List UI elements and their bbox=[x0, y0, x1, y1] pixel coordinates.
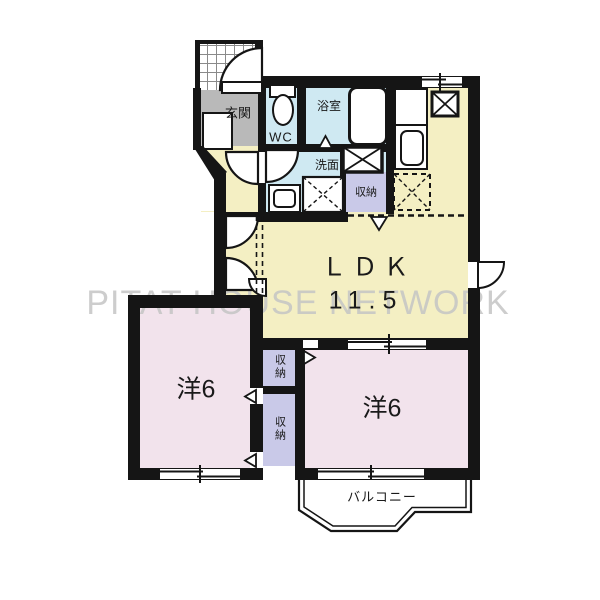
balcony-outline bbox=[299, 480, 471, 531]
sliding-door-ldk-right-room bbox=[348, 334, 426, 354]
entry-door-leaf bbox=[222, 82, 262, 93]
plan-symbols-layer bbox=[0, 0, 600, 600]
ps-shaft-box bbox=[432, 92, 458, 116]
bath-label: 浴室 bbox=[317, 100, 341, 112]
window-top bbox=[422, 73, 462, 91]
ldk-exterior-door-arc bbox=[478, 262, 504, 288]
genkan-label: 玄関 bbox=[225, 107, 251, 120]
kitchen-opening-mark bbox=[371, 217, 387, 230]
washroom-door-arc bbox=[266, 150, 298, 182]
storage-wash-label: 収納 bbox=[355, 188, 377, 199]
west-room-right-label: 洋6 bbox=[363, 397, 402, 422]
storage-mid-top-label: 収納 bbox=[274, 354, 285, 380]
hall-door-arc bbox=[226, 152, 258, 184]
wc-label: WC bbox=[269, 131, 293, 144]
ldk-size-label: 11.5 bbox=[329, 289, 404, 314]
washer-pan bbox=[303, 177, 343, 212]
hanging-cupboard-box bbox=[343, 147, 382, 172]
bath-door-mark bbox=[319, 136, 332, 148]
right-room-door-mark bbox=[304, 351, 315, 364]
corridor-door-arc-upper bbox=[226, 216, 258, 248]
ldk-label: ＬＤＫ bbox=[321, 256, 414, 281]
washroom-door-gap bbox=[258, 152, 266, 183]
storage-mid-bottom-label: 収納 bbox=[274, 416, 285, 442]
floorplan-canvas: PITAT HOUSE NETWORK bbox=[0, 0, 600, 600]
west-room-left-door-arc bbox=[249, 279, 266, 296]
right-room-opening-gap bbox=[303, 340, 318, 348]
window-left-room-south bbox=[160, 465, 240, 483]
washroom-label: 洗面 bbox=[315, 159, 339, 171]
balcony-label: バルコニー bbox=[347, 491, 417, 504]
west-room-left-label: 洋6 bbox=[177, 378, 216, 403]
fridge-space bbox=[394, 174, 430, 210]
